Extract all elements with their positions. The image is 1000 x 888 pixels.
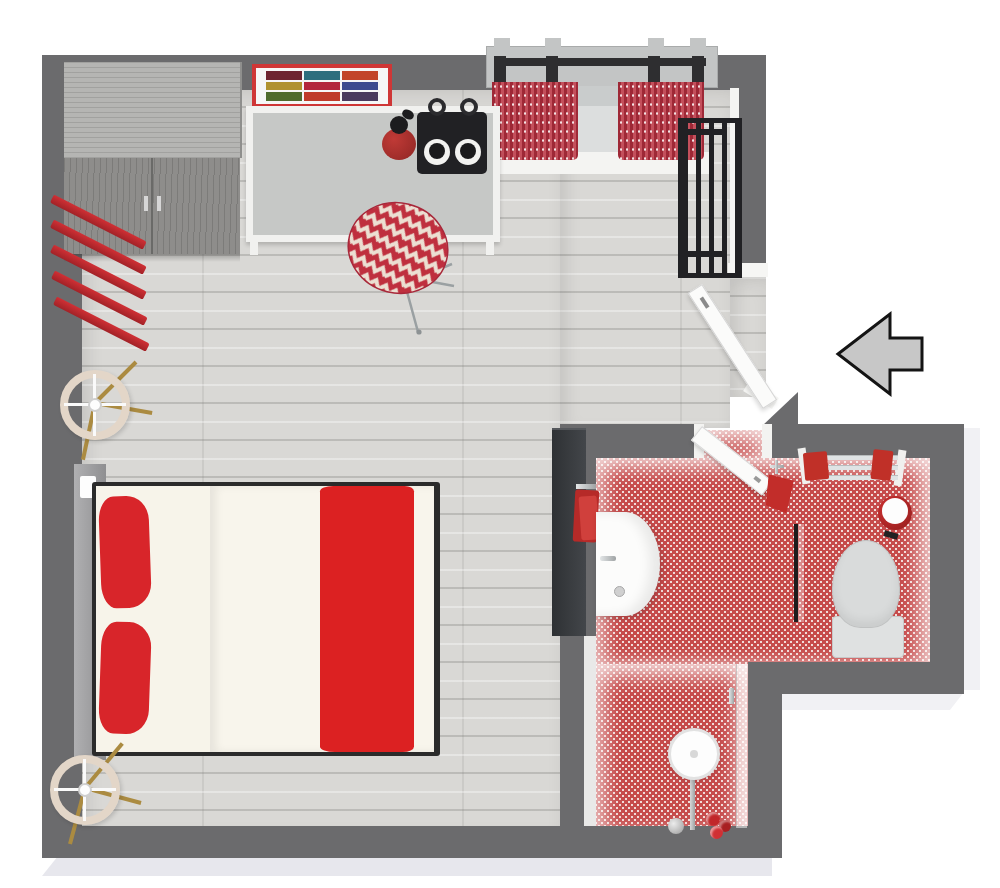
- lamp-bulb: [88, 398, 102, 412]
- floor-lamp-bottom: [30, 735, 140, 845]
- art-tile: [342, 71, 378, 80]
- rail-towel-right: [870, 449, 893, 481]
- pot-lid-ring-2: [460, 98, 478, 116]
- floor-plan: [0, 0, 1000, 888]
- double-bed: [74, 460, 442, 762]
- duvet: [210, 486, 434, 752]
- curtain-bracket-1: [494, 56, 506, 82]
- art-tile: [304, 71, 340, 80]
- shower-glass-handle: [729, 688, 734, 704]
- counter-leg-right: [486, 242, 494, 255]
- rail-towel-left: [803, 451, 829, 481]
- sink-faucet: [600, 556, 616, 561]
- bin-accent: [883, 530, 898, 539]
- foundation-right: [962, 428, 980, 690]
- sink-towel-bar: [576, 484, 596, 489]
- curtain-bracket-2: [546, 56, 558, 82]
- bathroom-wall-right: [930, 424, 964, 664]
- burner-right: [455, 139, 481, 165]
- shampoo-bottle: [706, 812, 720, 826]
- gallery-grid: [266, 71, 378, 101]
- towel-rail: [800, 448, 904, 486]
- shower-valve: [668, 818, 684, 834]
- chevron-chair: [344, 198, 456, 338]
- wardrobe-door-seam: [151, 158, 153, 254]
- shower-pipe: [690, 776, 695, 830]
- art-tile: [304, 82, 340, 91]
- pot-left: [429, 143, 445, 159]
- window-tab-3: [648, 38, 664, 50]
- cooktop: [417, 112, 487, 174]
- window-tab-1: [494, 38, 510, 50]
- floor-lamp-top: [40, 350, 150, 460]
- curtain-bracket-4: [692, 56, 704, 82]
- toilet-bowl: [832, 540, 900, 628]
- wardrobe-handle-right: [157, 196, 161, 211]
- pillow-top: [98, 495, 152, 609]
- bathroom-door-jamb-right: [762, 424, 772, 458]
- glass-partition-shine: [798, 524, 804, 622]
- bin-top: [882, 498, 908, 524]
- window-tab-4: [690, 38, 706, 50]
- waste-bin: [878, 496, 918, 542]
- window-tab-2: [545, 38, 561, 50]
- wardrobe-top: [64, 62, 242, 158]
- pot-right: [460, 143, 476, 159]
- gallery-frame: [252, 64, 392, 108]
- curtain-left: [492, 82, 578, 160]
- pillow-bottom: [98, 621, 152, 735]
- shampoo-bottle: [710, 826, 723, 839]
- duvet-red-stripe: [320, 486, 414, 752]
- chevron-chair-svg: [344, 198, 456, 338]
- bathroom-wall-west-lit-face: [584, 636, 596, 826]
- art-tile: [266, 92, 302, 101]
- art-tile: [342, 82, 378, 91]
- sink-drain: [614, 586, 625, 597]
- shower-head: [668, 728, 720, 780]
- wardrobe-shadow: [64, 254, 240, 262]
- foundation-bottom: [42, 856, 772, 876]
- radiator-top-bar: [683, 129, 727, 135]
- radiator: [678, 118, 742, 278]
- pot-lid-ring-1: [428, 98, 446, 116]
- radiator-bottom-bar: [683, 251, 727, 257]
- curtain-bracket-3: [648, 56, 660, 82]
- shower-glass: [736, 664, 747, 828]
- shower-wall-east: [748, 662, 782, 832]
- art-tile: [304, 92, 340, 101]
- hook-cross-icon: [770, 460, 784, 474]
- kettle: [382, 122, 416, 160]
- shower-head-center: [690, 750, 698, 758]
- lamp-bulb: [78, 783, 92, 797]
- counter-leg-left: [250, 242, 258, 255]
- entrance-arrow: [834, 310, 926, 400]
- art-tile: [342, 92, 378, 101]
- bathroom-door-handle: [753, 476, 761, 483]
- wardrobe-handle-left: [144, 196, 148, 211]
- art-tile: [266, 71, 302, 80]
- curtain-rod: [496, 58, 706, 66]
- entrance-door-handle: [700, 296, 710, 308]
- art-tile: [266, 82, 302, 91]
- burner-left: [424, 139, 450, 165]
